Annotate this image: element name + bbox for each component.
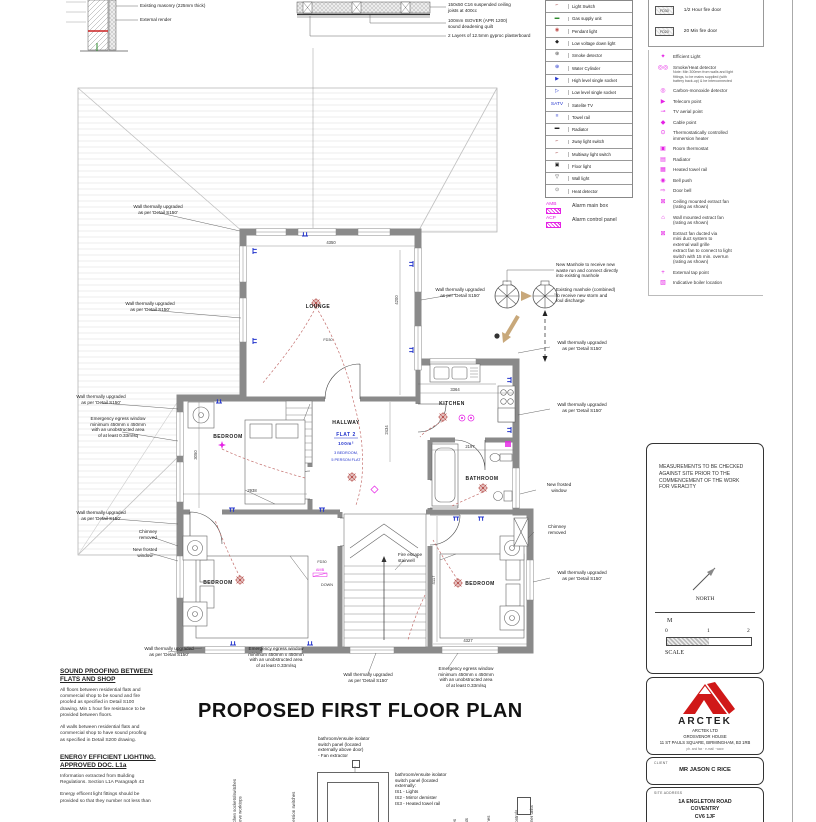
legend-label: Satelite TV	[569, 103, 593, 108]
legend-label: Low voltage down light	[569, 41, 615, 46]
legend-symbol-icon: ▣	[546, 164, 569, 169]
isolator-note-right: bathroom/ensuite isolator switch panel (…	[395, 772, 473, 806]
legend-row: ⊸ TV aerial point	[653, 109, 763, 115]
legend-label: Wall light	[569, 176, 589, 181]
legend-row: ⊕ Water Cylinder	[546, 62, 632, 74]
annotation-new-manhole: New Manhole to receive new waste run and…	[556, 262, 636, 279]
acp-bar-icon	[546, 222, 561, 228]
annotation-chimney-removed: Chimney removed	[532, 524, 582, 535]
room-label-hallway: HALLWAY	[332, 420, 360, 426]
legend-row: ⊙ Heat detector	[546, 185, 632, 196]
legend-label: Indicative boiler location	[673, 280, 722, 286]
dim-bedroom3-width: 4327	[463, 638, 473, 643]
legend-symbol-icon: ◎	[653, 88, 673, 94]
isolator-switch-box	[352, 760, 360, 768]
annotation-wall-upgraded: Wall thermally upgraded as per 'Detail S…	[548, 570, 616, 581]
legend-row: ≡ Towel rail	[546, 112, 632, 124]
legend-label: Thermostatically controlled immersion he…	[673, 130, 728, 141]
annotation-egress-window: Emergency egress window minimum 450mm x …	[74, 416, 162, 438]
dim-hall-height: 2434	[384, 425, 389, 435]
legend-symbol-icon: ⌐	[546, 140, 569, 145]
legend-label: 2way light switch	[569, 139, 604, 144]
flat-desc-2: 5 PERSON FLAT	[331, 458, 361, 462]
legend-symbol-icon: ⊙	[653, 130, 673, 136]
client-label: CLIENT	[654, 761, 668, 765]
legend-symbol-icon: ⊠	[653, 199, 673, 205]
north-label: NORTH	[647, 596, 763, 602]
annotation-wall-upgraded: Wall thermally upgraded as per 'Detail S…	[136, 646, 202, 657]
legend-symbol-icon: ⊙	[546, 189, 569, 194]
height-label-entry-phones: entry phones	[486, 766, 492, 822]
dim-bathroom-width: 2197	[465, 444, 475, 449]
annotation-egress-window: Emergency egress window minimum 450mm x …	[232, 646, 320, 668]
legend-label: External tap point	[673, 270, 709, 276]
alarm-legend: AMB Alarm main box ACP Alarm control pan…	[546, 203, 646, 231]
legend-row: ⊛ Smoke detector	[546, 50, 632, 62]
ceiling-detail-label-1: 150x50 C16 suspended ceiling joists at 4…	[448, 2, 540, 13]
acp-code: ACP	[546, 217, 564, 228]
ceiling-section-detail	[297, 2, 430, 17]
amb-bar-icon	[546, 208, 561, 214]
dim-bedroom1-width: 2938	[247, 488, 257, 493]
scale-tick-2: 2	[747, 628, 750, 634]
flat-desc-1: 3 BEDROOM,	[334, 451, 358, 455]
legend-label: Heated towel rail	[673, 167, 707, 173]
legend-symbol-icon: ▣	[653, 146, 673, 152]
fd30-label-lounge: FD30	[323, 338, 332, 342]
legend-row: ⇨ Door bell	[653, 188, 763, 194]
fd30-label: 1/2 Hour fire door	[684, 8, 721, 13]
acp-label: Alarm control panel	[572, 217, 617, 223]
fd30-symbol-icon: FD30	[655, 6, 674, 15]
legend-row: ⌐ Multiway light switch	[546, 149, 632, 161]
amb-code: AMB	[546, 203, 564, 214]
annotation-frosted-window: New frosted window	[534, 482, 584, 493]
height-label-immersion: immersion switches	[291, 755, 297, 822]
site-line-2: COVENTRY	[647, 806, 763, 813]
north-arrow-icon	[685, 562, 725, 596]
legend-symbol-icon: ◎◎	[653, 65, 673, 71]
drawing-sheet: 4350 4200 3364 2434 2197 2938 3050 4117 …	[0, 0, 816, 822]
dim-bedroom1-height: 3050	[193, 450, 198, 460]
legend-symbol-icon: ⌐	[546, 4, 569, 9]
legend-symbol-icon: ✦	[653, 54, 673, 60]
annotation-existing-manhole: Existing manhole (combined) to receive n…	[556, 287, 636, 304]
legend-label: Gas supply unit	[569, 16, 602, 21]
drawing-title: PROPOSED FIRST FLOOR PLAN	[198, 700, 523, 723]
legend-label: Cable point	[673, 120, 696, 126]
legend-symbol-icon: ▷	[546, 90, 569, 95]
fire-door-row: FD20 20 Min fire door	[649, 21, 763, 42]
legend-label: Telecom point	[673, 99, 701, 105]
height-label-light-switches: light switches	[452, 770, 458, 822]
sheet-border	[792, 0, 793, 822]
legend-label: Wall mounted extract fan (rating as show…	[673, 215, 724, 226]
notes-panel: SOUND PROOFING BETWEEN FLATS AND SHOP Al…	[60, 668, 182, 811]
legend-label: Bell push	[673, 178, 692, 184]
legend-row: + External tap point	[653, 270, 763, 276]
down-label: DOWN	[321, 583, 333, 587]
room-label-kitchen: KITCHEN	[439, 401, 465, 407]
legend-symbol-icon: ▤	[653, 157, 673, 163]
legend-label: Door bell	[673, 188, 691, 194]
legend-label: Low level single socket	[569, 90, 616, 95]
legend-row: ⌂ Wall mounted extract fan (rating as sh…	[653, 215, 763, 226]
legend-label: High level single socket	[569, 78, 617, 83]
legend-row: ▣ Room thermostat	[653, 146, 763, 152]
room-label-bedroom2: BEDROOM	[203, 580, 233, 586]
legend-row: ◆ Low voltage down light	[546, 38, 632, 50]
legend-label: Light Switch	[569, 4, 595, 9]
fd30-label-stairs: FD30	[317, 560, 326, 564]
legend-symbol-icon: ◉	[546, 29, 569, 34]
electrical-legend: ⌐ Light Switch ▬ Gas supply unit ◉ Penda…	[545, 0, 633, 198]
fd20-label: 20 Min fire door	[684, 29, 717, 34]
legend-row: SATV Satelite TV	[546, 99, 632, 111]
legend-label: Pendant light	[569, 29, 597, 34]
legend-symbol-icon: +	[653, 270, 673, 276]
scale-tick-1: 1	[707, 628, 710, 634]
legend-label: Ceiling mounted extract fan (rating as s…	[673, 199, 729, 210]
height-label-door-bells: door bells	[475, 770, 481, 822]
annotation-wall-upgraded: Wall thermally upgraded as per 'Detail S…	[64, 510, 138, 521]
legend-symbol-icon: ◆	[653, 120, 673, 126]
legend-row: ◉ Bell push	[653, 178, 763, 184]
room-label-lounge: LOUNGE	[306, 304, 331, 310]
legend-row: ◉ Pendant light	[546, 26, 632, 38]
site-address-label: SITE ADDRESS	[654, 791, 682, 795]
legend-row: ⊠ Extract fan ducted via mini duct syste…	[653, 231, 763, 265]
firm-box: ARCTEK ARCTEK LTD GROSVENOR HOUSE 11 ST …	[646, 677, 764, 755]
legend-label: Smoke detector	[569, 53, 602, 58]
legend-symbol-icon: ⊕	[546, 66, 569, 71]
client-name: MR JASON C RICE	[647, 767, 763, 773]
fire-door-row: FD30 1/2 Hour fire door	[649, 0, 763, 21]
legend-label: Smoke/Heat detectorNote: Min 300mm from …	[673, 65, 733, 84]
legend-row: ▬ Radiator	[546, 124, 632, 136]
annotation-wall-upgraded: Wall thermally upgraded as per 'Detail S…	[426, 287, 494, 298]
legend-row: ▤ Radiator	[653, 157, 763, 163]
legend-symbol-icon: SATV	[546, 103, 569, 108]
annotation-egress-window: Emergency egress window minimum 450mm x …	[422, 666, 510, 688]
site-line-3: CV6 1JF	[647, 814, 763, 821]
legend-symbol-icon: ≡	[546, 115, 569, 120]
legend-row: ◎◎ Smoke/Heat detectorNote: Min 300mm fr…	[653, 65, 763, 84]
annotation-chimney-removed: Chimney removed	[126, 529, 170, 540]
legend-symbol-icon: ▧	[653, 280, 673, 286]
fire-door-legend: FD30 1/2 Hour fire door FD20 20 Min fire…	[648, 0, 764, 47]
legend-symbol-icon: ▦	[653, 167, 673, 173]
legend-row: ▣ Floor light	[546, 161, 632, 173]
dim-lounge-height: 4200	[394, 295, 399, 305]
legend-symbol-icon: ⊠	[653, 231, 673, 237]
scale-label: SCALE	[665, 650, 684, 656]
legend-symbol-icon: ◉	[653, 178, 673, 184]
height-label-kitchen-sockets: kitchen sockets/switches above worktops	[232, 752, 243, 822]
legend-label: Water Cylinder	[569, 66, 600, 71]
ceiling-detail-label-2: 100mm ISOVER (APR 1200) sound deadening …	[448, 18, 540, 29]
legend-row: ⌐ Light Switch	[546, 1, 632, 13]
site-address: 1A ENGLETON ROAD COVENTRY CV6 1JF	[647, 799, 763, 821]
annotation-frosted-window: New frosted window	[122, 547, 168, 558]
legend-row: ▧ Indicative boiler location	[653, 280, 763, 286]
divider	[655, 612, 755, 613]
legend-row: ◎ Carbon-monoxide detector	[653, 88, 763, 94]
wall-detail-label-render: External render	[140, 17, 220, 23]
wall-detail-label-masonry: Existing masonry (225mm thick)	[140, 3, 220, 9]
arctek-logo-icon	[675, 682, 735, 718]
legend-symbol-icon: ▬	[546, 127, 569, 132]
legend-row: ▽ Wall light	[546, 173, 632, 185]
soundproofing-title: SOUND PROOFING BETWEEN FLATS AND SHOP	[60, 668, 182, 684]
legend-label: Radiator	[673, 157, 690, 163]
annotation-wall-upgraded: Wall thermally upgraded as per 'Detail S…	[64, 394, 138, 405]
lighting-title: ENERGY EFFICIENT LIGHTING. APPROVED DOC.…	[60, 754, 182, 770]
legend-symbol-icon: ⌐	[546, 152, 569, 157]
legend-label: Radiator	[569, 127, 588, 132]
scale-unit: M	[667, 618, 672, 624]
dim-bedroom3-height: 4117	[431, 575, 436, 585]
room-label-bedroom3: BEDROOM	[465, 581, 495, 587]
isolator-note-top: bathroom/ensuite isolator switch panel (…	[318, 736, 390, 759]
measurements-note: MEASUREMENTS TO BE CHECKED AGAINST SITE …	[647, 444, 763, 491]
legend-symbol-icon: ⌂	[653, 215, 673, 221]
annotation-wall-upgraded: Wall thermally upgraded as per 'Detail S…	[548, 340, 616, 351]
legend-label: Heat detector	[569, 189, 598, 194]
ceiling-detail-label-3: 2 Layers of 12.5mm gyproc plasterboard	[448, 33, 558, 39]
site-address-box: SITE ADDRESS 1A ENGLETON ROAD COVENTRY C…	[646, 787, 764, 822]
soundproofing-para-1: All floors between residential flats and…	[60, 688, 182, 719]
annotation-wall-upgraded: Wall thermally upgraded as per 'Detail S…	[112, 301, 188, 312]
height-label-thermostats: thermostats	[464, 766, 470, 822]
legend-symbol-icon: ⊸	[653, 109, 673, 115]
flat-area: 100m²	[338, 441, 354, 446]
amb-label-plan: AMB	[316, 568, 325, 572]
room-label-bedroom1: BEDROOM	[213, 434, 243, 440]
legend-label: Floor light	[569, 164, 591, 169]
annotation-fire-escape: Fire escape stairwell	[398, 552, 440, 563]
lighting-para-2: Energy efficent light fittings should be…	[60, 792, 182, 804]
firm-line-3: 11 ST PAULS SQUARE, BIRMINGHAM, B3 1RB	[647, 740, 763, 746]
legend-symbol-icon: ▶	[546, 78, 569, 83]
site-line-1: 1A ENGLETON ROAD	[647, 799, 763, 806]
legend-row: ⊠ Ceiling mounted extract fan (rating as…	[653, 199, 763, 210]
annotation-wall-upgraded: Wall thermally upgraded as per 'Detail S…	[334, 672, 402, 683]
services-legend: ✦ Efficient Light ◎◎ Smoke/Heat detector…	[648, 50, 763, 296]
legend-row: ⊙ Thermostatically controlled immersion …	[653, 130, 763, 141]
notes-box: MEASUREMENTS TO BE CHECKED AGAINST SITE …	[646, 443, 764, 674]
scale-tick-0: 0	[665, 628, 668, 634]
door-frame-inner	[327, 782, 379, 822]
legend-label: Towel rail	[569, 115, 590, 120]
firm-address: ARCTEK LTD GROSVENOR HOUSE 11 ST PAULS S…	[647, 728, 763, 746]
soundproofing-para-2: All walls between residential flats and …	[60, 725, 182, 744]
scale-bar	[666, 637, 752, 646]
legend-row: ⌐ 2way light switch	[546, 136, 632, 148]
firm-contact: ph. and fax · e-mail · www	[647, 747, 763, 751]
room-label-bathroom: BATHROOM	[465, 476, 498, 482]
legend-row: ▶ High level single socket	[546, 75, 632, 87]
flat-label: FLAT 2	[336, 432, 356, 438]
annotation-wall-upgraded: Wall thermally upgraded as per 'Detail S…	[118, 204, 198, 215]
legend-symbol-icon: ▶	[653, 99, 673, 105]
legend-symbol-icon: ▬	[546, 17, 569, 22]
annotation-wall-upgraded: Wall thermally upgraded as per 'Detail S…	[548, 402, 616, 413]
legend-row: ▷ Low level single socket	[546, 87, 632, 99]
firm-name: ARCTEK	[647, 716, 763, 727]
consumer-unit-box	[517, 797, 531, 815]
amb-label: Alarm main box	[572, 203, 608, 209]
wall-section-detail	[66, 0, 128, 51]
legend-label: TV aerial point	[673, 109, 703, 115]
legend-label: Carbon-monoxide detector	[673, 88, 727, 94]
dim-kitchen-width: 3364	[450, 387, 460, 392]
lighting-para-1: Information extracted from Building Regu…	[60, 774, 182, 786]
client-box: CLIENT MR JASON C RICE	[646, 757, 764, 785]
legend-row: ▬ Gas supply unit	[546, 13, 632, 25]
legend-row: ▶ Telecom point	[653, 99, 763, 105]
legend-symbol-icon: ⊛	[546, 53, 569, 58]
legend-symbol-icon: ▽	[546, 176, 569, 181]
legend-label: Extract fan ducted via mini duct system …	[673, 231, 732, 265]
fd20-symbol-icon: FD20	[655, 27, 674, 36]
legend-row: ✦ Efficient Light	[653, 54, 763, 60]
legend-label: Room thermostat	[673, 146, 708, 152]
legend-row: ◆ Cable point	[653, 120, 763, 126]
legend-symbol-icon: ◆	[546, 41, 569, 46]
dim-lounge-width: 4350	[326, 240, 336, 245]
legend-label: Multiway light switch	[569, 152, 611, 157]
legend-row: ▦ Heated towel rail	[653, 167, 763, 173]
legend-label: Efficient Light	[673, 54, 701, 60]
legend-symbol-icon: ⇨	[653, 188, 673, 194]
